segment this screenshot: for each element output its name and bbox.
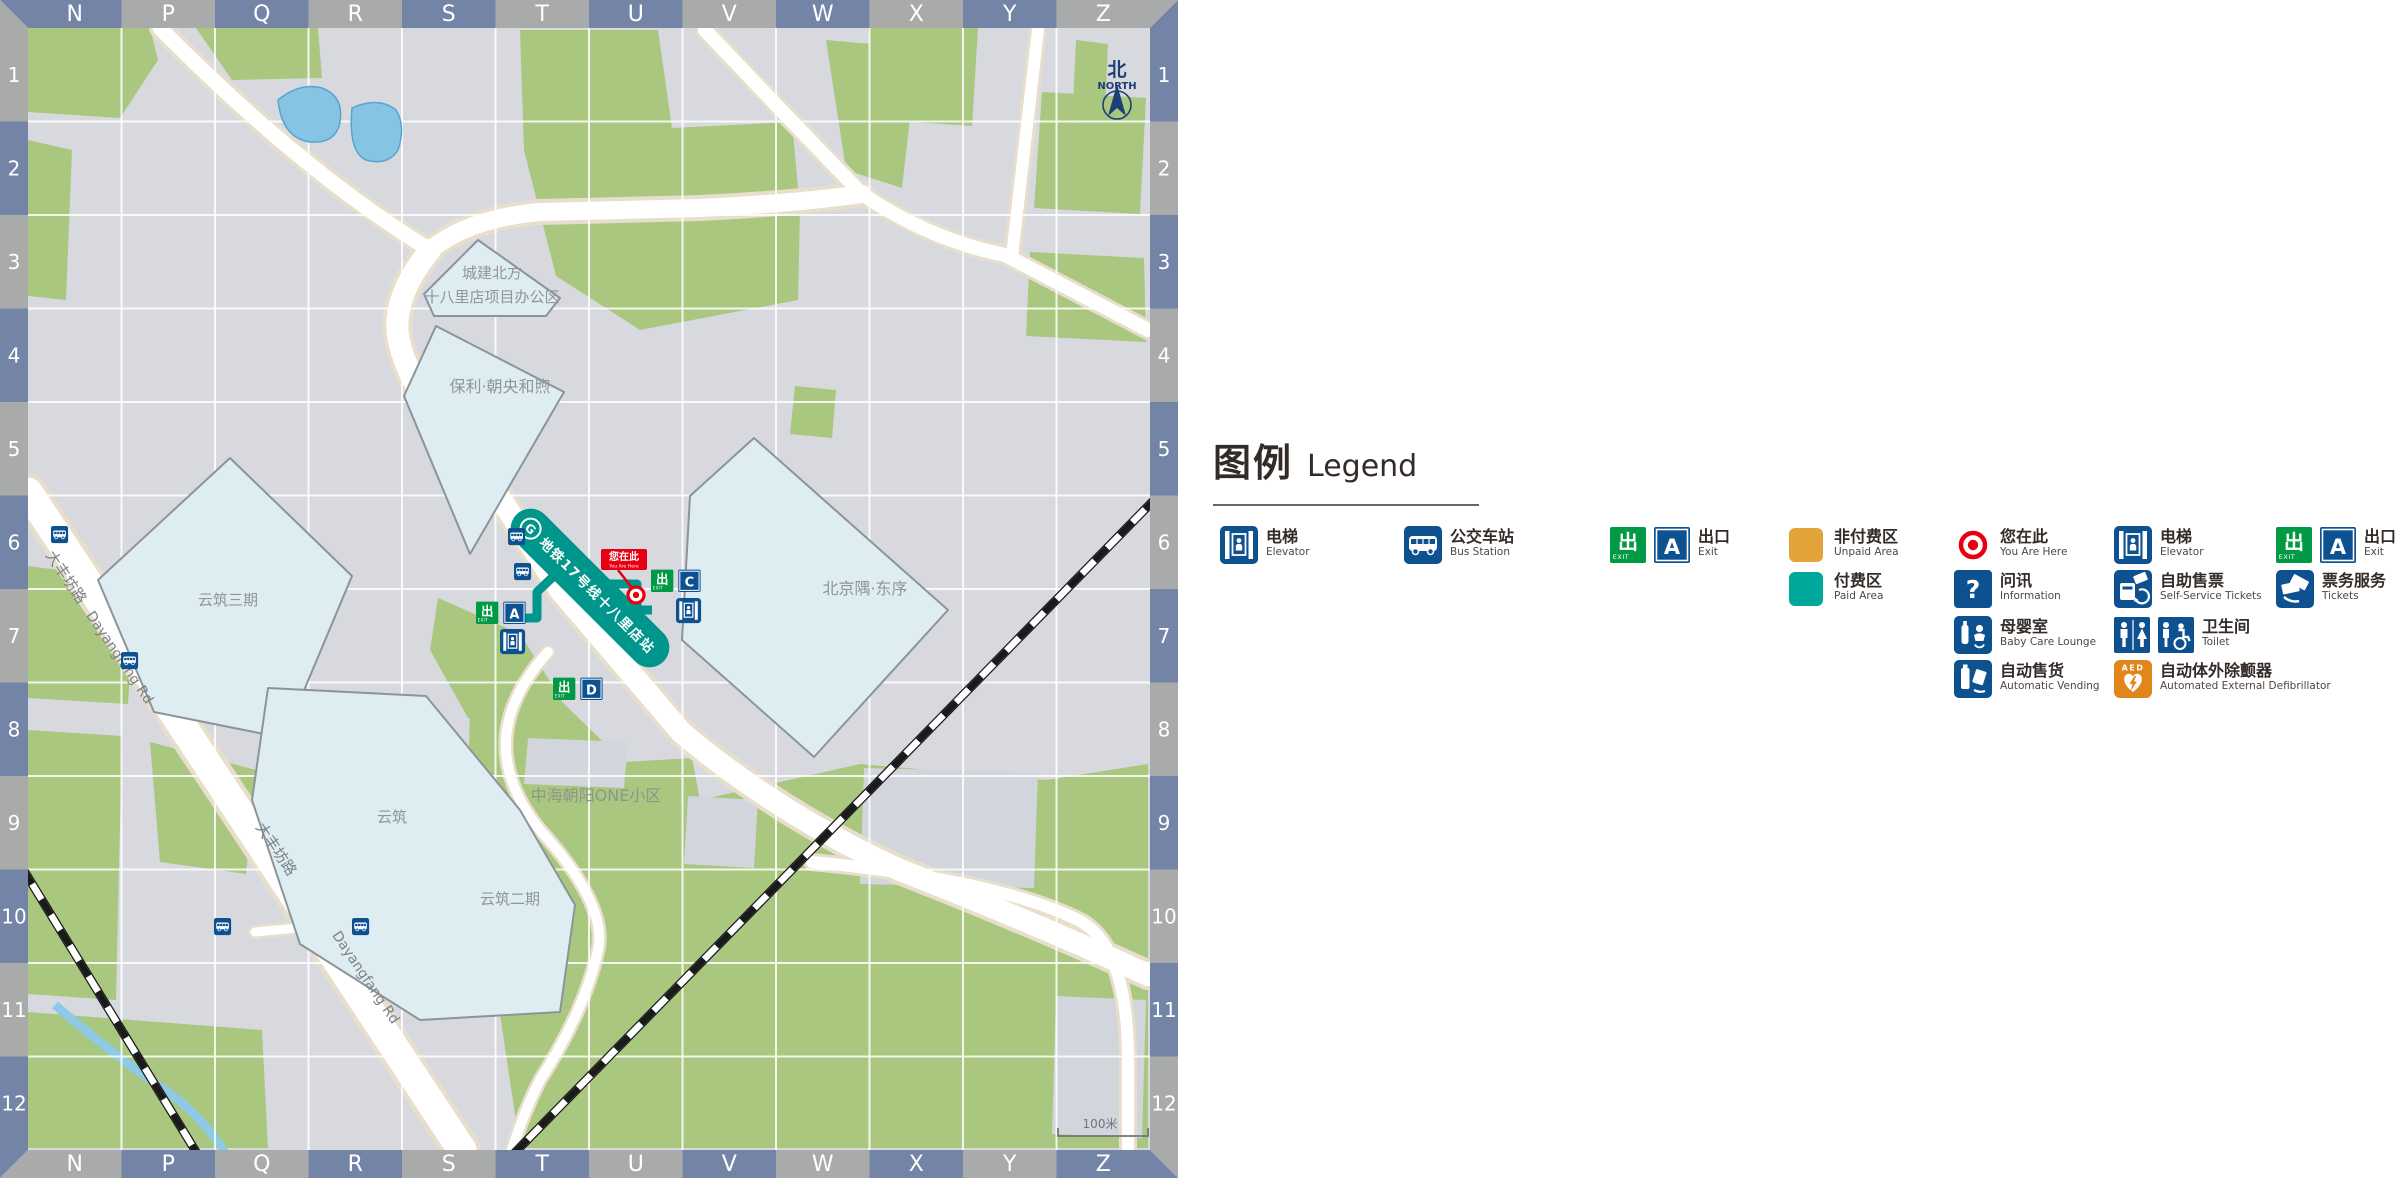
legend-label-en: Self-Service Tickets: [2160, 590, 2262, 603]
here-icon: [1954, 526, 1992, 568]
building-label: 保利·朝央和煦: [449, 377, 550, 396]
grid-row-label: 10: [1, 904, 26, 928]
legend-label-zh: 电梯: [2160, 527, 2204, 546]
grid-row-label: 7: [1158, 624, 1171, 648]
legend-label-en: Toilet: [2202, 636, 2250, 649]
legend-item-unpaid: 非付费区Unpaid Area: [1788, 526, 1899, 568]
legend-label-en: Tickets: [2322, 590, 2386, 603]
grid-col-label: Y: [1002, 2, 1017, 27]
svg-text:D: D: [586, 683, 597, 698]
area-label: 中海朝阳ONE小区: [531, 786, 662, 805]
building-label: 云筑三期: [198, 591, 258, 609]
map-bus-stop-icon: [508, 528, 525, 545]
legend-label-zh: 出口: [2364, 527, 2396, 546]
grid-row-label: 6: [8, 530, 21, 554]
grid-col-label: U: [628, 1152, 644, 1177]
grid-col-label: T: [535, 1152, 550, 1177]
station-map: 城建北方 十八里店项目办公区 保利·朝央和煦 北京隅·东序 云筑三期 云筑 云筑…: [0, 0, 1178, 1178]
legend-item-bus: 公交车站Bus Station: [1404, 526, 1514, 568]
map-bus-stop-icon: [51, 526, 68, 543]
grid-col-label: R: [348, 1152, 363, 1177]
legend-label-en: Elevator: [1266, 546, 1310, 559]
legend-item-elevator: 电梯Elevator: [2114, 526, 2204, 568]
grid-row-label: 1: [1158, 63, 1171, 87]
grid-col-label: U: [628, 2, 644, 27]
grid-row-label: 2: [1158, 156, 1171, 180]
legend-label-zh: 卫生间: [2202, 617, 2250, 636]
svg-text:AED: AED: [2122, 664, 2145, 673]
bus-icon: [1404, 526, 1442, 568]
grid-col-label: Y: [1002, 1152, 1017, 1177]
map-elevator-icon: [676, 598, 701, 623]
grid-col-label: Q: [253, 1152, 270, 1177]
legend-label-zh: 公交车站: [1450, 527, 1514, 546]
grid-col-label: V: [722, 2, 737, 27]
legend-item-info: ?问讯Information: [1954, 570, 2061, 612]
legend-label-en: Information: [2000, 590, 2061, 603]
legend-label-zh: 出口: [1698, 527, 1730, 546]
legend-item-baby: 母婴室Baby Care Lounge: [1954, 616, 2096, 658]
grid-row-label: 2: [8, 156, 21, 180]
building-label: 城建北方: [462, 264, 522, 282]
legend-label-zh: 自动体外除颤器: [2160, 661, 2331, 680]
building-label: 云筑: [377, 808, 407, 826]
legend-label-en: Exit: [2364, 546, 2396, 559]
grid-col-label: N: [67, 2, 83, 27]
legend-item-paid: 付费区Paid Area: [1788, 570, 1883, 612]
legend-label-en: Unpaid Area: [1834, 546, 1899, 559]
legend-label-en: Automatic Vending: [2000, 680, 2100, 693]
grid-row-label: 4: [8, 343, 21, 367]
map-bus-stop-icon: [214, 918, 231, 935]
map-bus-stop-icon: [121, 652, 138, 669]
grid-col-label: N: [67, 1152, 83, 1177]
legend-label-en: You Are Here: [2000, 546, 2067, 559]
map-bus-stop-icon: [514, 563, 531, 580]
legend-label-en: Automated External Defibrillator: [2160, 680, 2331, 693]
svg-text:EXIT: EXIT: [2279, 553, 2295, 561]
info-icon: ?: [1954, 570, 1992, 612]
grid-row-label: 5: [1158, 437, 1171, 461]
svg-text:A: A: [1664, 535, 1681, 559]
legend-item-tickets: 票务服务Tickets: [2276, 570, 2386, 612]
toilet-icon: [2114, 616, 2194, 658]
legend-item-exit: 出 EXIT A出口Exit: [2276, 526, 2396, 568]
svg-text:出: 出: [1618, 530, 1638, 554]
legend-label-zh: 自动售货: [2000, 661, 2100, 680]
exit-icon: 出 EXIT A: [2276, 526, 2356, 568]
baby-icon: [1954, 616, 1992, 658]
grid-row-label: 8: [1158, 717, 1171, 741]
building-label: 十八里店项目办公区: [424, 288, 559, 306]
svg-text:出: 出: [656, 571, 668, 586]
svg-text:EXIT: EXIT: [653, 585, 663, 590]
grid-col-label: W: [812, 1152, 834, 1177]
svg-text:A: A: [2330, 535, 2347, 559]
legend-label-zh: 问讯: [2000, 571, 2061, 590]
tickets-icon: [2276, 570, 2314, 612]
grid-col-label: R: [348, 2, 363, 27]
legend-title-zh: 图例: [1213, 441, 1293, 485]
legend-title: 图例Legend: [1213, 432, 1417, 487]
scale-label: 100米: [1083, 1117, 1118, 1131]
svg-text:EXIT: EXIT: [478, 617, 488, 622]
legend-label-en: Exit: [1698, 546, 1730, 559]
map-elevator-icon: [500, 629, 525, 654]
grid-col-label: Z: [1096, 2, 1111, 27]
grid-col-label: X: [909, 1152, 924, 1177]
grid-col-label: Z: [1096, 1152, 1111, 1177]
legend-label-zh: 付费区: [1834, 571, 1883, 590]
grid-row-label: 3: [8, 250, 21, 274]
legend-label-en: Baby Care Lounge: [2000, 636, 2096, 649]
grid-row-label: 5: [8, 437, 21, 461]
svg-text:A: A: [509, 607, 520, 622]
legend-label-en: Elevator: [2160, 546, 2204, 559]
building-label: 云筑二期: [480, 890, 540, 908]
legend-label-zh: 非付费区: [1834, 527, 1899, 546]
building-label: 北京隅·东序: [822, 579, 907, 598]
you-are-here-zh: 您在此: [609, 550, 639, 563]
grid-col-label: T: [535, 2, 550, 27]
grid-row-label: 6: [1158, 530, 1171, 554]
grid-col-label: S: [442, 1152, 456, 1177]
grid-col-label: Q: [253, 2, 270, 27]
grid-row-label: 12: [1, 1091, 26, 1115]
exit-icon: 出 EXIT A: [1610, 526, 1690, 568]
grid-row-label: 9: [8, 811, 21, 835]
station-area-map-page: 城建北方 十八里店项目办公区 保利·朝央和煦 北京隅·东序 云筑三期 云筑 云筑…: [0, 0, 2400, 1178]
svg-text:EXIT: EXIT: [555, 693, 565, 698]
grid-col-label: P: [162, 1152, 175, 1177]
legend-label-zh: 母婴室: [2000, 617, 2096, 636]
legend-label-zh: 您在此: [2000, 527, 2067, 546]
grid-col-label: P: [162, 2, 175, 27]
legend-label-en: Paid Area: [1834, 590, 1883, 603]
svg-text:出: 出: [558, 679, 570, 694]
grid-row-label: 3: [1158, 250, 1171, 274]
legend-underline: [1213, 504, 1479, 506]
aed-icon: AED: [2114, 660, 2152, 702]
grid-row-label: 11: [1, 998, 26, 1022]
svg-text:出: 出: [2284, 530, 2304, 554]
paid-icon: [1788, 570, 1826, 612]
svg-text:出: 出: [481, 603, 493, 618]
grid-row-label: 8: [8, 717, 21, 741]
legend-label-en: Bus Station: [1450, 546, 1514, 559]
ticketmachine-icon: [2114, 570, 2152, 612]
legend-label-zh: 自助售票: [2160, 571, 2262, 590]
grid-col-label: W: [812, 2, 834, 27]
grid-row-label: 9: [1158, 811, 1171, 835]
legend-item-ticketmachine: 自助售票Self-Service Tickets: [2114, 570, 2262, 612]
legend-label-zh: 电梯: [1266, 527, 1310, 546]
unpaid-icon: [1788, 526, 1826, 568]
grid-col-label: V: [722, 1152, 737, 1177]
grid-row-label: 11: [1151, 998, 1176, 1022]
you-are-here-en: You Are Here: [608, 564, 639, 570]
legend-item-vending: 自动售货Automatic Vending: [1954, 660, 2100, 702]
svg-text:C: C: [685, 575, 695, 590]
svg-text:EXIT: EXIT: [1613, 553, 1629, 561]
legend-item-aed: AED 自动体外除颤器Automated External Defibrilla…: [2114, 660, 2331, 702]
legend-item-here: 您在此You Are Here: [1954, 526, 2067, 568]
legend-item-toilet: 卫生间Toilet: [2114, 616, 2250, 658]
legend-item-exit: 出 EXIT A出口Exit: [1610, 526, 1730, 568]
vending-icon: [1954, 660, 1992, 702]
elevator-icon: [2114, 526, 2152, 568]
elevator-icon: [1220, 526, 1258, 568]
legend-title-en: Legend: [1307, 449, 1417, 484]
grid-col-label: X: [909, 2, 924, 27]
grid-row-label: 12: [1151, 1091, 1176, 1115]
grid-row-label: 10: [1151, 904, 1176, 928]
grid-col-label: S: [442, 2, 456, 27]
grid-row-label: 7: [8, 624, 21, 648]
legend-label-zh: 票务服务: [2322, 571, 2386, 590]
grid-row-label: 4: [1158, 343, 1171, 367]
grid-row-label: 1: [8, 63, 21, 87]
svg-text:?: ?: [1966, 575, 1981, 604]
legend-item-elevator: 电梯Elevator: [1220, 526, 1310, 568]
north-zh: 北: [1107, 59, 1126, 81]
map-bus-stop-icon: [352, 918, 369, 935]
